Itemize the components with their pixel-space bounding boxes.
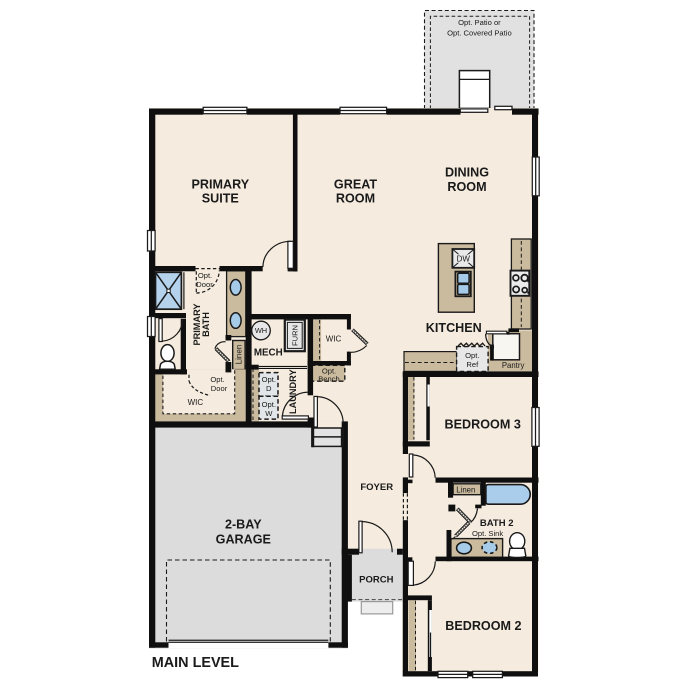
svg-text:ROOM: ROOM (336, 191, 375, 205)
svg-text:2-BAY: 2-BAY (225, 517, 262, 531)
svg-text:Opt. Sink: Opt. Sink (472, 529, 503, 538)
svg-text:PRIMARY: PRIMARY (191, 177, 249, 191)
svg-text:Opt. Patio or: Opt. Patio or (458, 18, 501, 27)
svg-text:MAIN LEVEL: MAIN LEVEL (152, 655, 239, 671)
svg-text:Bench: Bench (318, 375, 340, 384)
svg-text:WIC: WIC (188, 398, 204, 407)
svg-text:Ref: Ref (466, 360, 479, 369)
svg-text:FOYER: FOYER (360, 482, 393, 493)
svg-text:KITCHEN: KITCHEN (426, 321, 482, 335)
svg-text:Opt.: Opt. (262, 375, 276, 384)
svg-text:ROOM: ROOM (447, 180, 486, 194)
svg-text:Pantry: Pantry (502, 361, 525, 370)
svg-text:D: D (266, 384, 272, 393)
svg-text:BEDROOM 3: BEDROOM 3 (445, 418, 521, 432)
svg-text:BATH: BATH (201, 312, 211, 337)
svg-text:BATH 2: BATH 2 (480, 518, 514, 529)
svg-text:Opt. Covered Patio: Opt. Covered Patio (447, 28, 512, 37)
svg-text:WIC: WIC (326, 335, 342, 344)
svg-text:Opt.: Opt. (262, 400, 276, 409)
svg-text:PORCH: PORCH (359, 574, 393, 585)
svg-text:Opt.: Opt. (198, 271, 212, 280)
svg-text:DW: DW (457, 254, 471, 263)
svg-text:Opt.: Opt. (465, 351, 479, 360)
svg-text:DINING: DINING (445, 165, 489, 179)
svg-text:Door: Door (211, 384, 228, 393)
svg-text:GREAT: GREAT (334, 177, 377, 191)
svg-text:BEDROOM 2: BEDROOM 2 (445, 619, 521, 633)
svg-text:MECH: MECH (254, 348, 283, 359)
svg-text:W: W (265, 409, 273, 418)
svg-text:FURN: FURN (291, 325, 300, 346)
svg-text:Door: Door (196, 280, 213, 289)
svg-text:WH: WH (255, 326, 267, 335)
svg-text:SUITE: SUITE (202, 191, 239, 205)
svg-text:GARAGE: GARAGE (216, 533, 271, 547)
svg-text:Linen: Linen (235, 345, 244, 365)
svg-text:Opt.: Opt. (210, 375, 224, 384)
svg-text:LAUNDRY: LAUNDRY (288, 369, 298, 414)
svg-text:Linen: Linen (456, 485, 475, 494)
